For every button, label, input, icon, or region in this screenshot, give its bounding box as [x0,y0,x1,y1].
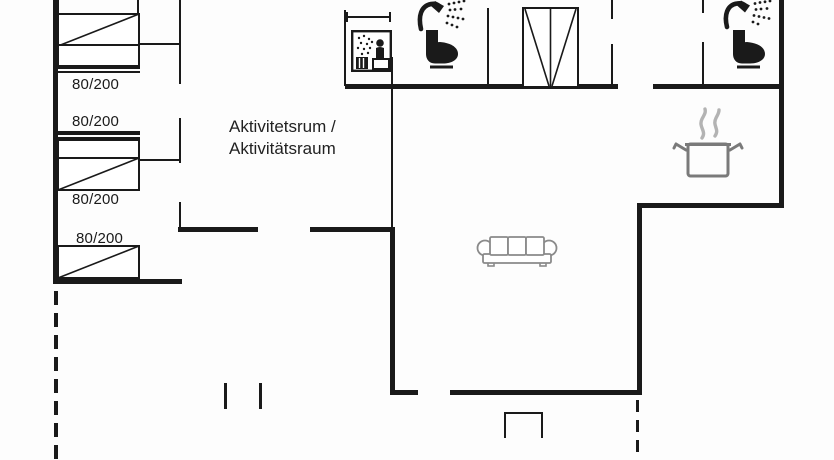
shower-icon [722,0,774,29]
dashed-boundary-line [54,291,58,460]
partition-rail-tick [346,12,348,22]
entrance-step [541,412,543,438]
wall-segment [653,84,784,89]
bed-headboard-line [57,71,140,73]
bed-size-label: 80/200 [76,230,123,247]
toilet-icon [730,28,770,70]
bed-size-label-clipped: 140/200 [516,0,572,4]
toilet-icon [423,30,463,70]
wall-segment [179,118,181,163]
bed-symbol [57,44,140,67]
bed-size-label: 80/200 [72,76,119,93]
bed-symbol [57,245,140,279]
wall-segment [779,0,784,208]
floor-plan: 80/200 80/200 80/200 80/200 140/200 Akti… [0,0,834,460]
door-post [259,383,262,409]
bed-symbol-partial [137,0,139,14]
partition-rail-tick [389,12,391,22]
wall-segment [702,0,704,13]
wall-segment [637,203,784,208]
wall-segment [391,89,393,227]
wall-segment [140,159,181,161]
bed-symbol [57,139,140,159]
room-label-line1: Aktivitetsrum / [229,116,336,138]
wall-segment [140,43,181,45]
wall-segment [392,390,418,395]
entrance-step [504,412,506,438]
bed-size-label: 80/200 [72,113,119,130]
entrance-step [504,412,543,414]
wall-segment [611,0,613,19]
room-label-activity: Aktivitetsrum / Aktivitätsraum [229,116,336,160]
door-post [224,383,227,409]
dashed-boundary-line [636,400,639,460]
wall-segment [390,227,395,395]
shower-icon [416,0,468,31]
bed-size-label: 80/200 [72,191,119,208]
wall-segment [310,227,395,232]
wall-segment [637,203,642,395]
cooking-pot-icon [672,102,744,180]
wall-segment [178,227,258,232]
room-label-line2: Aktivitätsraum [229,138,336,160]
bed-symbol-partial [57,0,59,14]
wall-segment [487,8,489,85]
wall-segment [450,390,640,395]
sauna-icon [351,30,392,72]
bed-symbol [57,13,140,47]
wall-segment [53,279,182,284]
double-bed-symbol [522,7,579,88]
wall-segment [179,202,181,228]
partition-rail [347,16,391,18]
wall-segment [611,44,613,85]
wall-segment [179,0,181,84]
bed-headboard-line [57,131,140,135]
sofa-icon [476,233,558,275]
bed-symbol [57,157,140,191]
wall-segment [702,42,704,85]
